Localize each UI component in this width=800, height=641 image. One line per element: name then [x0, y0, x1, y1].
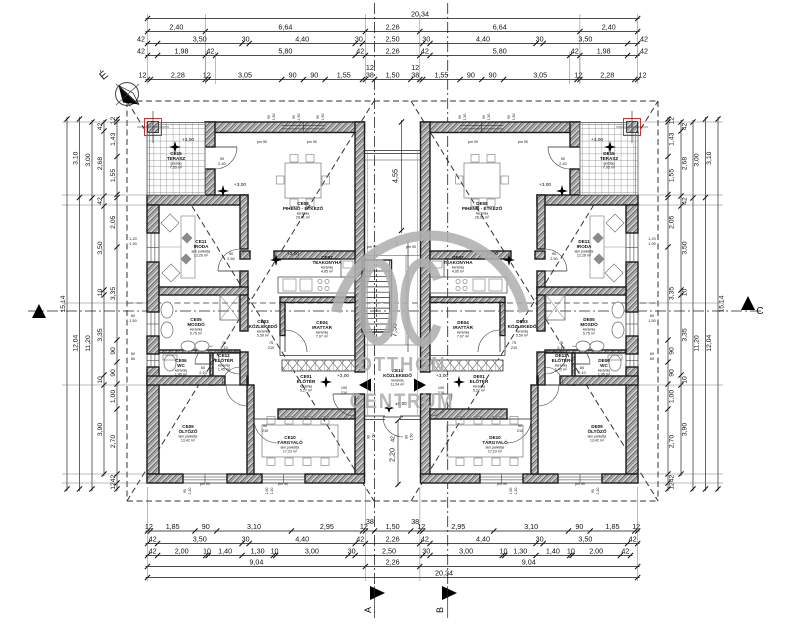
svg-text:3,50: 3,50 — [578, 535, 592, 544]
svg-text:5,27 m²: 5,27 m² — [300, 389, 313, 393]
svg-text:9,04: 9,04 — [522, 558, 536, 567]
svg-text:3,50: 3,50 — [193, 35, 207, 44]
svg-text:60: 60 — [131, 352, 135, 356]
svg-text:4,95 m²: 4,95 m² — [452, 270, 465, 274]
svg-text:1,00: 1,00 — [669, 390, 676, 403]
svg-text:210: 210 — [517, 429, 523, 433]
svg-text:A: A — [363, 607, 373, 613]
svg-text:10: 10 — [203, 547, 211, 556]
svg-text:42: 42 — [682, 123, 689, 131]
svg-text:17,23 m²: 17,23 m² — [488, 450, 503, 454]
svg-text:PIHENŐ - ÉTKEZŐ: PIHENŐ - ÉTKEZŐ — [283, 204, 324, 211]
svg-text:2,95: 2,95 — [320, 522, 334, 531]
svg-text:90: 90 — [669, 369, 676, 377]
svg-text:1,50: 1,50 — [372, 434, 376, 441]
svg-text:42: 42 — [110, 475, 117, 483]
svg-text:1,30: 1,30 — [513, 547, 527, 556]
svg-text:17,23 m²: 17,23 m² — [283, 450, 298, 454]
svg-text:WC: WC — [177, 363, 185, 368]
svg-text:1,85: 1,85 — [166, 522, 180, 531]
svg-text:1,50: 1,50 — [648, 319, 655, 323]
svg-text:42: 42 — [356, 535, 364, 544]
svg-text:+3,00: +3,00 — [591, 137, 603, 143]
svg-text:3,35: 3,35 — [682, 328, 689, 341]
svg-text:13,42 m²: 13,42 m² — [590, 439, 605, 443]
svg-text:60: 60 — [131, 314, 135, 318]
svg-text:210: 210 — [268, 346, 274, 350]
svg-text:KÖZLEKEDŐ: KÖZLEKEDŐ — [249, 323, 278, 329]
svg-text:30: 30 — [348, 547, 356, 556]
svg-text:2,00: 2,00 — [175, 547, 189, 556]
svg-text:75: 75 — [559, 341, 563, 345]
svg-text:pm 90: pm 90 — [278, 482, 288, 486]
svg-text:5,59 m²: 5,59 m² — [257, 334, 270, 338]
svg-text:1,43: 1,43 — [110, 132, 117, 145]
svg-text:12,26 m²: 12,26 m² — [194, 254, 209, 258]
svg-text:12,04: 12,04 — [706, 334, 713, 351]
svg-text:TÁRGYALÓ: TÁRGYALÓ — [482, 438, 508, 445]
svg-text:3,10: 3,10 — [247, 522, 261, 531]
svg-text:3,50: 3,50 — [193, 535, 207, 544]
svg-text:3,10: 3,10 — [73, 151, 80, 164]
svg-text:1,50: 1,50 — [463, 114, 467, 121]
svg-text:5,27 m²: 5,27 m² — [473, 389, 486, 393]
svg-text:3,35: 3,35 — [110, 287, 117, 300]
svg-text:WC: WC — [600, 363, 608, 368]
svg-text:1,55: 1,55 — [110, 169, 117, 182]
svg-text:1,20: 1,20 — [129, 237, 136, 241]
svg-text:1,50: 1,50 — [386, 71, 400, 80]
svg-text:42: 42 — [97, 123, 104, 131]
svg-text:11,20: 11,20 — [85, 335, 92, 352]
svg-text:90: 90 — [489, 71, 497, 80]
svg-text:1,50: 1,50 — [129, 319, 136, 323]
svg-text:10: 10 — [97, 376, 104, 384]
svg-text:10: 10 — [567, 547, 575, 556]
svg-text:+3,00: +3,00 — [337, 373, 349, 379]
svg-text:CENTRUM: CENTRUM — [350, 390, 455, 413]
svg-text:1,90: 1,90 — [129, 242, 136, 246]
svg-text:2,10: 2,10 — [199, 371, 206, 375]
svg-text:42: 42 — [421, 535, 429, 544]
svg-text:pm 90: pm 90 — [468, 140, 478, 144]
svg-text:+3,00: +3,00 — [287, 251, 299, 257]
svg-text:42: 42 — [206, 47, 214, 56]
svg-text:3,05: 3,05 — [533, 71, 547, 80]
svg-text:TERASZ: TERASZ — [600, 156, 619, 161]
svg-text:MOSDÓ: MOSDÓ — [580, 320, 598, 327]
svg-text:13,42 m²: 13,42 m² — [181, 439, 196, 443]
svg-text:IRODA: IRODA — [577, 244, 592, 249]
svg-text:C: C — [756, 306, 763, 317]
svg-text:KÖZLEKEDŐ: KÖZLEKEDŐ — [508, 323, 537, 329]
svg-text:210: 210 — [511, 346, 517, 350]
svg-text:90: 90 — [316, 115, 320, 119]
svg-text:pm 90: pm 90 — [307, 140, 317, 144]
svg-text:12: 12 — [639, 71, 647, 80]
svg-text:90: 90 — [367, 435, 371, 439]
svg-text:pm 90: pm 90 — [497, 482, 507, 486]
svg-text:30: 30 — [422, 35, 430, 44]
svg-text:11,20: 11,20 — [694, 335, 701, 352]
svg-text:2,70: 2,70 — [669, 435, 676, 448]
svg-text:4,40: 4,40 — [295, 35, 309, 44]
svg-text:3,05: 3,05 — [238, 71, 252, 80]
svg-text:30: 30 — [242, 535, 250, 544]
svg-text:12: 12 — [145, 522, 153, 531]
svg-text:3,10: 3,10 — [524, 522, 538, 531]
svg-text:3,00: 3,00 — [305, 547, 319, 556]
svg-text:12: 12 — [669, 117, 676, 125]
svg-text:210: 210 — [262, 429, 268, 433]
svg-text:5,75 m²: 5,75 m² — [583, 332, 596, 336]
svg-text:60: 60 — [650, 352, 654, 356]
svg-text:42: 42 — [421, 47, 429, 56]
svg-text:2,10: 2,10 — [557, 346, 564, 350]
svg-text:90: 90 — [310, 71, 318, 80]
svg-text:10: 10 — [271, 547, 279, 556]
svg-text:15,14: 15,14 — [60, 295, 67, 312]
svg-text:12: 12 — [411, 63, 419, 72]
svg-text:30: 30 — [536, 35, 544, 44]
svg-text:ELŐTÉR: ELŐTÉR — [297, 377, 316, 384]
svg-text:1,60: 1,60 — [265, 488, 269, 495]
svg-text:90: 90 — [575, 522, 583, 531]
svg-text:42: 42 — [621, 547, 629, 556]
svg-text:90: 90 — [482, 115, 486, 119]
svg-text:28,01 m²: 28,01 m² — [475, 216, 490, 220]
svg-text:2,05: 2,05 — [110, 215, 117, 228]
svg-text:3,00: 3,00 — [85, 153, 92, 166]
svg-text:pm 90: pm 90 — [518, 140, 528, 144]
svg-text:pm 90: pm 90 — [257, 140, 267, 144]
svg-text:10: 10 — [97, 289, 104, 297]
svg-text:2,26: 2,26 — [386, 535, 400, 544]
svg-text:90: 90 — [518, 424, 522, 428]
svg-text:7,05 m²: 7,05 m² — [170, 166, 183, 170]
svg-text:42: 42 — [137, 47, 145, 56]
svg-text:2,10: 2,10 — [578, 371, 585, 375]
svg-text:38: 38 — [366, 517, 374, 526]
svg-text:90: 90 — [229, 252, 233, 256]
svg-text:1,20: 1,20 — [188, 488, 192, 495]
svg-text:3,35: 3,35 — [669, 287, 676, 300]
svg-text:4,40: 4,40 — [295, 535, 309, 544]
svg-text:1,50: 1,50 — [487, 114, 491, 121]
svg-text:1,40: 1,40 — [546, 547, 560, 556]
svg-text:2,26: 2,26 — [386, 47, 400, 56]
svg-text:90: 90 — [561, 157, 565, 161]
svg-text:3,50: 3,50 — [578, 35, 592, 44]
svg-text:3,90: 3,90 — [682, 423, 689, 436]
svg-text:2,40: 2,40 — [169, 23, 183, 32]
svg-text:6,64: 6,64 — [493, 23, 507, 32]
svg-text:1,30: 1,30 — [251, 547, 265, 556]
svg-text:2,40: 2,40 — [559, 162, 566, 166]
svg-text:2,28: 2,28 — [600, 71, 614, 80]
svg-text:10: 10 — [682, 289, 689, 297]
svg-text:7,05 m²: 7,05 m² — [603, 166, 616, 170]
svg-text:1,60: 1,60 — [509, 488, 513, 495]
svg-text:pm 90: pm 90 — [200, 482, 210, 486]
svg-text:2,50: 2,50 — [382, 547, 396, 556]
svg-text:TEAKONYHA: TEAKONYHA — [443, 260, 473, 265]
svg-text:3,90: 3,90 — [97, 423, 104, 436]
svg-text:2,05: 2,05 — [669, 215, 676, 228]
svg-text:5,80: 5,80 — [278, 47, 292, 56]
svg-text:90: 90 — [202, 522, 210, 531]
svg-text:10: 10 — [500, 547, 508, 556]
svg-text:ELŐTÉR: ELŐTÉR — [215, 356, 234, 363]
svg-text:1,20: 1,20 — [270, 488, 274, 495]
svg-text:2,10: 2,10 — [220, 346, 227, 350]
svg-text:38: 38 — [411, 517, 419, 526]
svg-text:2,20: 2,20 — [388, 448, 397, 462]
svg-text:90: 90 — [669, 347, 676, 355]
svg-text:1,00: 1,00 — [110, 390, 117, 403]
svg-text:7,07 m²: 7,07 m² — [316, 335, 329, 339]
svg-text:12,04: 12,04 — [73, 334, 80, 351]
svg-text:75: 75 — [269, 341, 273, 345]
svg-text:1,50: 1,50 — [512, 114, 516, 121]
svg-text:60: 60 — [650, 314, 654, 318]
svg-text:3,35: 3,35 — [97, 328, 104, 341]
svg-text:2,50: 2,50 — [227, 257, 234, 261]
svg-text:4,40: 4,40 — [476, 535, 490, 544]
svg-text:90: 90 — [507, 115, 511, 119]
svg-text:1,45 m²: 1,45 m² — [218, 368, 231, 372]
svg-text:1,50: 1,50 — [321, 114, 325, 121]
svg-text:90: 90 — [467, 71, 475, 80]
svg-text:20,34: 20,34 — [411, 10, 429, 19]
svg-text:TERASZ: TERASZ — [167, 156, 186, 161]
svg-text:42: 42 — [356, 47, 364, 56]
svg-text:30: 30 — [536, 535, 544, 544]
svg-text:9,04: 9,04 — [249, 558, 263, 567]
svg-text:90: 90 — [289, 71, 297, 80]
svg-text:ÖLTÖZŐ: ÖLTÖZŐ — [588, 428, 607, 434]
svg-text:30: 30 — [355, 35, 363, 44]
svg-text:90: 90 — [552, 252, 556, 256]
svg-text:1,50: 1,50 — [297, 114, 301, 121]
svg-text:42: 42 — [137, 35, 145, 44]
svg-text:TEAKONYHA: TEAKONYHA — [312, 260, 342, 265]
svg-text:90: 90 — [458, 115, 462, 119]
svg-text:ÖLTÖZŐ: ÖLTÖZŐ — [179, 428, 198, 434]
svg-text:PIHENŐ - ÉTKEZŐ: PIHENŐ - ÉTKEZŐ — [462, 204, 503, 211]
svg-text:1,45 m²: 1,45 m² — [555, 368, 568, 372]
svg-text:IRATTÁR: IRATTÁR — [312, 324, 332, 330]
svg-text:2,28: 2,28 — [171, 71, 185, 80]
svg-text:3,00: 3,00 — [694, 153, 701, 166]
svg-text:+3,00: +3,00 — [539, 182, 551, 188]
svg-text:+3,00: +3,00 — [182, 137, 194, 143]
svg-text:2,26: 2,26 — [386, 558, 400, 567]
svg-text:30: 30 — [242, 35, 250, 44]
svg-text:4,95 m²: 4,95 m² — [321, 270, 334, 274]
svg-text:90: 90 — [405, 435, 409, 439]
svg-text:60: 60 — [131, 357, 135, 361]
svg-text:90: 90 — [220, 157, 224, 161]
svg-text:B: B — [435, 607, 445, 613]
svg-text:42: 42 — [640, 35, 648, 44]
svg-text:2,68: 2,68 — [682, 157, 689, 170]
svg-text:2,26: 2,26 — [386, 23, 400, 32]
svg-text:42: 42 — [682, 197, 689, 205]
svg-text:42: 42 — [97, 197, 104, 205]
svg-text:OTTHON: OTTHON — [358, 354, 447, 376]
svg-text:1,50: 1,50 — [410, 434, 414, 441]
svg-text:6,64: 6,64 — [278, 23, 292, 32]
svg-text:90: 90 — [292, 115, 296, 119]
svg-text:1,45 m²: 1,45 m² — [598, 373, 611, 377]
svg-text:1,43: 1,43 — [669, 132, 676, 145]
svg-text:12: 12 — [110, 117, 117, 125]
svg-text:1,55: 1,55 — [434, 71, 448, 80]
svg-text:210: 210 — [341, 391, 347, 395]
svg-text:75: 75 — [512, 341, 516, 345]
svg-text:7,07 m²: 7,07 m² — [457, 335, 470, 339]
svg-text:5,59 m²: 5,59 m² — [516, 334, 529, 338]
svg-text:3,50: 3,50 — [97, 241, 104, 254]
svg-text:2,50: 2,50 — [386, 35, 400, 44]
svg-text:4,55: 4,55 — [391, 169, 400, 183]
svg-text:1,85: 1,85 — [606, 522, 620, 531]
svg-text:60: 60 — [580, 366, 584, 370]
svg-text:12,26 m²: 12,26 m² — [577, 254, 592, 258]
svg-text:90: 90 — [267, 115, 271, 119]
svg-text:ELŐTÉR: ELŐTÉR — [552, 356, 571, 363]
svg-text:30: 30 — [422, 547, 430, 556]
svg-text:2,40: 2,40 — [602, 23, 616, 32]
svg-text:42: 42 — [640, 47, 648, 56]
svg-text:1,98: 1,98 — [175, 47, 189, 56]
svg-text:20,34: 20,34 — [435, 569, 453, 578]
svg-text:11,54 m²: 11,54 m² — [391, 383, 406, 387]
svg-text:12: 12 — [139, 71, 147, 80]
svg-text:42: 42 — [629, 535, 637, 544]
svg-text:+3,00: +3,00 — [234, 182, 246, 188]
svg-text:IRODA: IRODA — [194, 244, 209, 249]
svg-text:MOSDÓ: MOSDÓ — [187, 320, 205, 327]
svg-text:42: 42 — [149, 535, 157, 544]
svg-text:3,10: 3,10 — [706, 151, 713, 164]
svg-text:2,50: 2,50 — [550, 257, 557, 261]
svg-text:12: 12 — [366, 63, 374, 72]
svg-text:TÁRGYALÓ: TÁRGYALÓ — [277, 438, 303, 445]
svg-text:5,75 m²: 5,75 m² — [190, 332, 203, 336]
svg-text:2,70: 2,70 — [110, 435, 117, 448]
svg-text:12: 12 — [574, 71, 582, 80]
svg-text:1,20: 1,20 — [514, 488, 518, 495]
svg-text:2,00: 2,00 — [589, 547, 603, 556]
svg-text:1,45 m²: 1,45 m² — [175, 373, 188, 377]
svg-text:1,55: 1,55 — [669, 169, 676, 182]
svg-text:pm 90: pm 90 — [575, 482, 585, 486]
svg-text:42: 42 — [391, 436, 397, 442]
svg-text:60: 60 — [650, 357, 654, 361]
svg-text:90: 90 — [110, 369, 117, 377]
svg-text:5,80: 5,80 — [493, 47, 507, 56]
svg-text:12: 12 — [203, 71, 211, 80]
svg-text:10: 10 — [682, 376, 689, 384]
svg-text:4,40: 4,40 — [476, 35, 490, 44]
svg-text:3,00: 3,00 — [459, 547, 473, 556]
svg-text:38: 38 — [411, 71, 419, 80]
svg-text:ELŐTÉR: ELŐTÉR — [470, 377, 489, 384]
svg-text:2,40: 2,40 — [218, 162, 225, 166]
svg-text:1,20: 1,20 — [596, 488, 600, 495]
svg-text:75: 75 — [222, 341, 226, 345]
svg-text:1,40: 1,40 — [218, 547, 232, 556]
svg-text:pm 90: pm 90 — [406, 245, 416, 249]
svg-text:90: 90 — [263, 424, 267, 428]
svg-text:2,68: 2,68 — [97, 157, 104, 170]
svg-text:90: 90 — [591, 489, 595, 493]
svg-text:1,20: 1,20 — [648, 237, 655, 241]
svg-text:1,55: 1,55 — [337, 71, 351, 80]
svg-text:28,01 m²: 28,01 m² — [296, 216, 311, 220]
svg-text:1,50: 1,50 — [272, 114, 276, 121]
svg-text:38: 38 — [366, 71, 374, 80]
svg-text:12: 12 — [632, 522, 640, 531]
svg-text:1,90: 1,90 — [648, 242, 655, 246]
svg-text:2,95: 2,95 — [451, 522, 465, 531]
svg-text:100: 100 — [341, 386, 347, 390]
svg-text:1,50: 1,50 — [386, 522, 400, 531]
svg-text:3,50: 3,50 — [682, 241, 689, 254]
svg-text:90: 90 — [183, 489, 187, 493]
svg-text:15,14: 15,14 — [719, 295, 726, 312]
svg-text:42: 42 — [571, 47, 579, 56]
svg-text:90: 90 — [110, 347, 117, 355]
svg-text:42: 42 — [149, 547, 157, 556]
svg-text:IRATTÁR: IRATTÁR — [453, 324, 473, 330]
svg-text:42: 42 — [669, 475, 676, 483]
svg-text:60: 60 — [201, 366, 205, 370]
svg-text:1,98: 1,98 — [597, 47, 611, 56]
